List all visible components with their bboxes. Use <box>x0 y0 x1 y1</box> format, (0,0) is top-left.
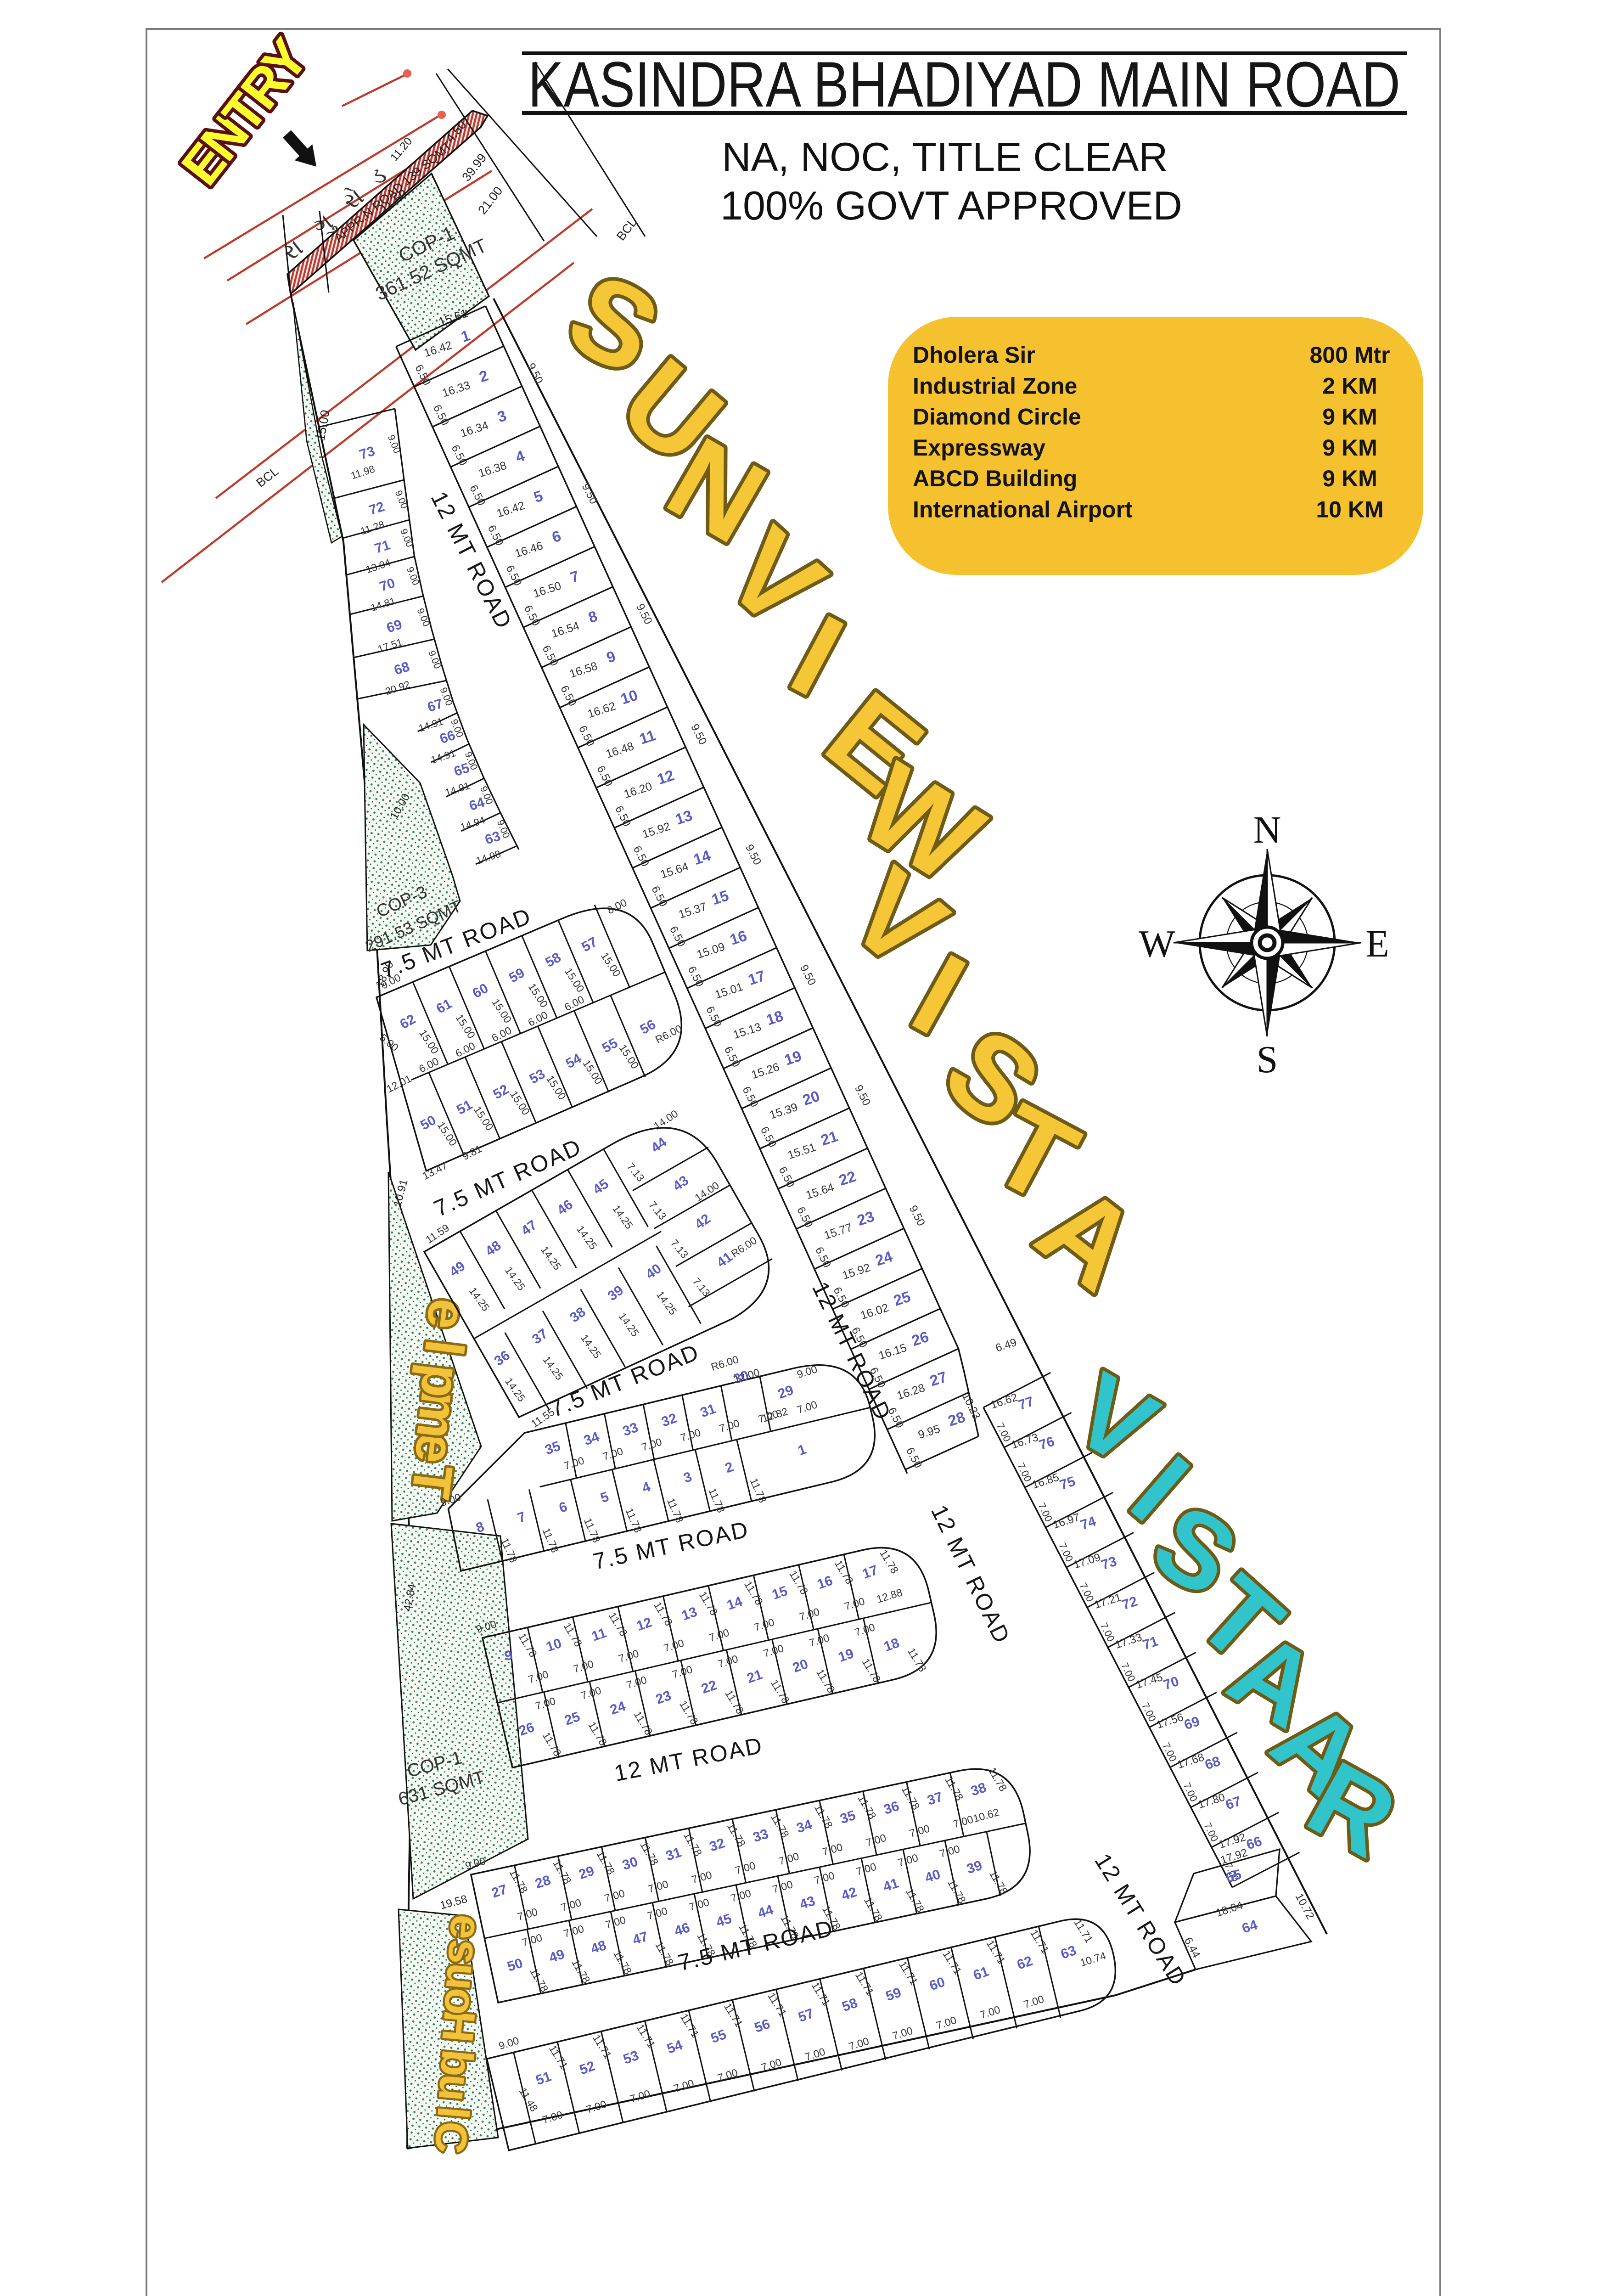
svg-text:9 KM: 9 KM <box>1322 466 1377 491</box>
svg-text:E: E <box>1365 923 1389 965</box>
svg-text:International Airport: International Airport <box>913 497 1133 523</box>
svg-text:W: W <box>1139 923 1175 965</box>
svg-text:Diamond Circle: Diamond Circle <box>913 404 1081 430</box>
svg-text:800 Mtr: 800 Mtr <box>1309 342 1390 368</box>
svg-text:2 KM: 2 KM <box>1322 373 1377 399</box>
svg-text:Industrial Zone: Industrial Zone <box>913 373 1077 399</box>
svg-text:100% GOVT APPROVED: 100% GOVT APPROVED <box>720 183 1182 228</box>
svg-text:ABCD Building: ABCD Building <box>913 466 1077 491</box>
svg-text:9 KM: 9 KM <box>1322 404 1377 430</box>
svg-text:NA, NOC, TITLE CLEAR: NA, NOC, TITLE CLEAR <box>722 134 1168 180</box>
svg-text:b: b <box>431 2048 483 2079</box>
svg-text:C: C <box>425 2120 477 2155</box>
svg-text:S: S <box>1257 1038 1278 1081</box>
svg-text:Dholera Sir: Dholera Sir <box>913 342 1035 368</box>
svg-text:KASINDRA BHADIYAD MAIN ROAD: KASINDRA BHADIYAD MAIN ROAD <box>528 48 1400 120</box>
svg-text:u: u <box>437 1961 488 1992</box>
svg-text:Expressway: Expressway <box>913 435 1045 461</box>
svg-text:9 KM: 9 KM <box>1322 435 1377 461</box>
svg-text:10 KM: 10 KM <box>1316 497 1383 523</box>
svg-text:s: s <box>438 1938 489 1967</box>
svg-text:N: N <box>1253 809 1281 851</box>
